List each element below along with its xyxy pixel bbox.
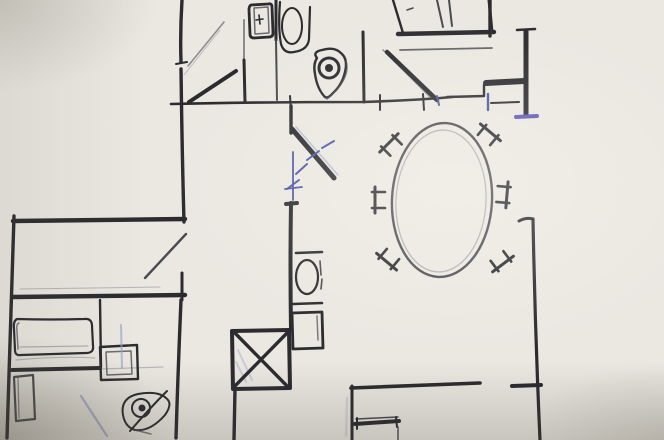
- wall-corridor-bottom: [13, 295, 185, 297]
- wall-centre-lower: [291, 203, 292, 330]
- wall-thick-purple-cap: [516, 116, 537, 117]
- wall-thick-top-cap: [517, 29, 535, 30]
- nightstand-blue-stroke: [121, 325, 122, 368]
- appliance-box-inner: [317, 316, 318, 340]
- wall-partition-lower: [244, 60, 245, 102]
- wall-partition2-lower: [276, 40, 277, 100]
- toilet-mid-bottom-bar: [293, 303, 322, 304]
- wall-jog-lower-line: [491, 102, 519, 103]
- sink-top-drain-dot: [325, 64, 333, 72]
- wall-centre-cap: [286, 203, 297, 204]
- bed-foot-line: [12, 368, 100, 370]
- toilet-mid-top-bar: [296, 252, 322, 253]
- wall-jog-thick: [486, 81, 524, 83]
- wall-below-shaft: [234, 389, 235, 440]
- bedroom-sink-drain: [139, 405, 146, 412]
- wall-corridor-top: [13, 219, 185, 221]
- furniture-bottom-edge: [398, 32, 494, 34]
- blue-smudge: [346, 398, 347, 436]
- floorplan-photo: [0, 0, 664, 440]
- wall-sink-room-right: [363, 32, 364, 102]
- floorplan-sketch: [0, 0, 664, 440]
